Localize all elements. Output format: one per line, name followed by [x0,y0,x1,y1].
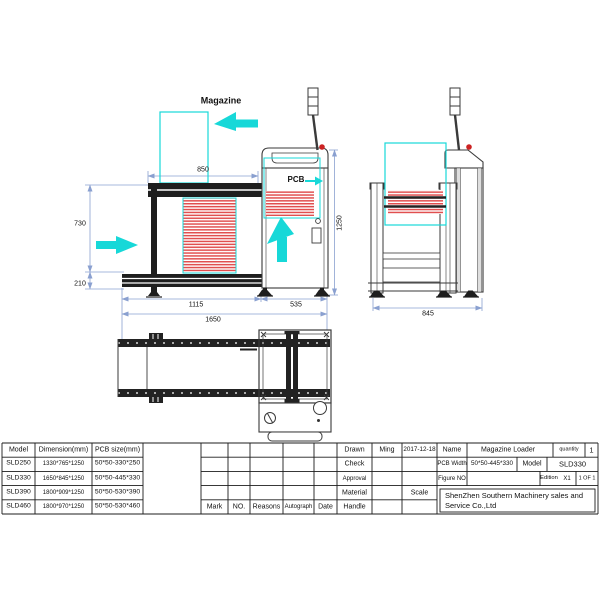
plan-view [118,330,331,441]
magazine-label: Magazine [201,97,242,106]
model-table-cell-dimension: 1800*909*1250 [43,490,84,496]
dim-730-label: 730 [73,221,87,228]
figure-no-label: Figure NO [438,476,466,482]
dim-1650-label: 1650 [205,317,221,324]
page-value: 1 OF 1 [579,476,596,482]
cabinet-pcb-stack [266,191,314,216]
edition-label: Edition [540,476,558,482]
side-pcb-stack [388,190,443,214]
model-table-cell-pcb-size: 50*50-530*390 [95,489,140,496]
material-label: Material [342,489,367,496]
plan-lower-body [259,402,331,442]
model-table-cell-model: SLD330 [6,475,31,482]
edition-value: X1 [563,476,570,482]
revision-header-no: NO. [233,503,245,510]
pcb-stack [183,198,236,273]
model-table-cell-pcb-size: 50*50-330*250 [95,461,140,468]
dim-535-label: 535 [290,302,302,309]
model-table-cell-model: SLD390 [6,489,31,496]
cabinet-feet [257,288,330,296]
signal-tower-icon [308,88,318,150]
side-view [368,88,483,311]
revision-header-autograph: Autograph [285,504,313,510]
drawn-date-value: 2017-12-18 [403,447,435,453]
revision-header-reasons: Reasons [253,503,281,510]
scale-label: Scale [411,489,429,496]
name-value: Magazine Loader [481,447,535,454]
revision-header-date: Date [318,503,333,510]
model-table-cell-dimension: 1650*845*1250 [43,476,84,482]
model-label: Model [522,461,541,468]
plan-conveyor [118,333,330,403]
magazine-in-arrow-icon [214,112,258,131]
model-table-header-pcb-size: PCB size(mm) [95,447,140,454]
revision-header-mark: Mark [207,503,223,510]
alarm-lamp-dot [319,144,325,150]
model-table-cell-pcb-size: 50*50-530*460 [95,503,140,510]
handle-label: Handle [343,503,365,510]
quantity-value: 1 [589,446,593,454]
drawn-by-value: Ming [379,447,394,454]
name-label: Name [443,447,462,454]
side-signal-tower-icon [450,88,460,150]
model-value: SLD330 [559,461,586,469]
check-label: Check [345,461,365,468]
model-table-cell-model: SLD250 [6,461,31,468]
model-table-cell-pcb-size: 50*50-445*330 [95,475,140,482]
drawing-sheet: Magazine PCB 850 730 210 1115 535 1650 1… [0,0,600,600]
quantity-label: quantity [559,447,578,453]
model-table-header-dimension: Dimension(mm) [39,447,88,454]
side-alarm-lamp-dot [466,144,472,150]
side-dimension-lines [373,298,482,311]
approval-label: Approval [343,476,367,482]
company-name: ShenZhen Southern Machinery sales and Se… [440,489,595,512]
board-flow-arrow-icon [96,236,138,254]
pcb-width-label: PCB Width [437,461,466,467]
dim-1250-label: 1250 [337,214,344,232]
pcb-label: PCB [288,176,305,184]
model-table-cell-dimension: 1330*765*1250 [43,461,84,467]
dim-210-label: 210 [73,281,87,288]
dim-845-label: 845 [422,311,434,318]
pcb-width-value: 50*50-445*330 [471,461,513,467]
model-table-cell-dimension: 1800*970*1250 [43,504,84,510]
dim-1115-label: 1115 [189,302,204,309]
drawn-label: Drawn [344,447,364,454]
model-table-header-model: Model [9,447,28,454]
model-table-cell-model: SLD460 [6,503,31,510]
dim-850-label: 850 [197,167,209,174]
